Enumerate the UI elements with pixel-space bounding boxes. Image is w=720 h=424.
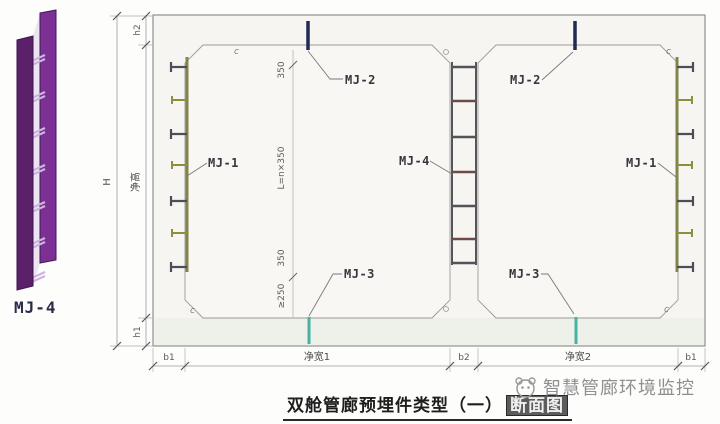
legend-label: MJ-4 (14, 298, 57, 317)
label-mj3-left: MJ-3 (344, 267, 375, 281)
label-mj2-right: MJ-2 (510, 73, 541, 87)
legend-rail-back (40, 10, 56, 263)
watermark-text: 智慧管廊环境监控 (543, 374, 695, 400)
dim-label-rung-top-offset: 350 (277, 61, 287, 78)
ext-bottom-chain (153, 348, 705, 372)
legend-rail-front (17, 36, 33, 290)
mj4-isometric-figure: MJ-4 (14, 10, 57, 317)
watermark: 智慧管廊环境监控 (512, 374, 695, 400)
drawing-title-text: 双舱管廊预埋件类型（一） (287, 396, 503, 415)
dim-label-wall-left: b1 (163, 353, 174, 363)
section-drawing-canvas: MJ-4 c c c c (0, 0, 720, 424)
dim-label-net-height: 净高 (129, 172, 142, 192)
page-root: { "legend": { "label": "MJ-4" }, "labels… (0, 0, 720, 424)
dim-label-rung-bottom-offset: 350 (277, 249, 287, 266)
dim-label-floor-thickness: h1 (133, 326, 143, 337)
chamfer-label-top-right: c (666, 47, 671, 57)
dim-label-net-width-left: 净宽1 (304, 350, 330, 363)
label-mj4: MJ-4 (399, 154, 430, 168)
cabin-right-outline (478, 45, 678, 318)
chamfer-label-bottom-left: c (190, 306, 195, 316)
dim-label-overall-height: H (102, 178, 113, 186)
dim-label-wall-right: b1 (685, 353, 696, 363)
dim-label-net-width-right: 净宽2 (565, 350, 591, 363)
dim-label-wall-middle: b2 (458, 353, 469, 363)
watermark-logo-icon (512, 374, 538, 400)
label-mj3-right: MJ-3 (509, 267, 540, 281)
cabin-left-outline (185, 45, 450, 318)
chamfer-label-bottom-right: c (664, 305, 669, 315)
label-mj2-left: MJ-2 (345, 73, 376, 87)
dim-label-roof-thickness: h2 (133, 24, 143, 35)
chamfer-label-top-left: c (234, 47, 239, 57)
dim-label-rung-spacing: L=n×350 (277, 146, 287, 189)
label-mj1-left: MJ-1 (208, 156, 239, 170)
floor-slab-band (154, 318, 704, 345)
tunnel-section: c c c c (153, 15, 705, 346)
label-mj1-right: MJ-1 (626, 156, 657, 170)
dim-label-rung-min-clearance: ≥250 (277, 283, 287, 308)
